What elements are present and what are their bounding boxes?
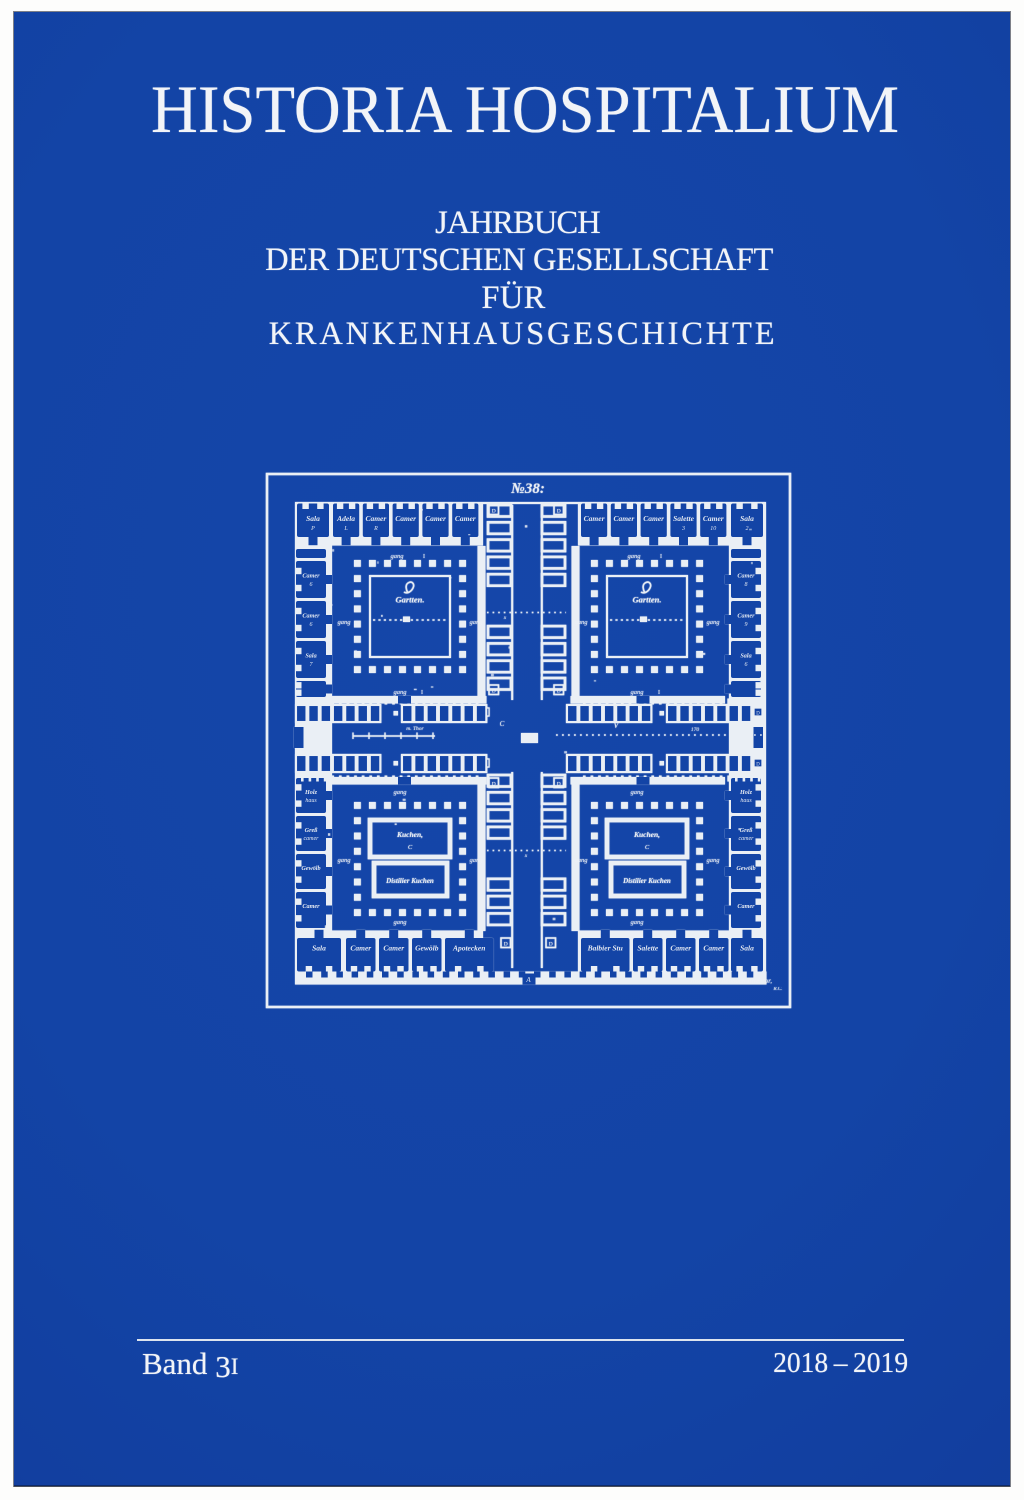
svg-text:camer: camer [304, 836, 320, 842]
svg-text:Kuchen,: Kuchen, [633, 830, 660, 839]
svg-text:Greß: Greß [740, 827, 754, 834]
svg-text:gang: gang [470, 619, 484, 626]
svg-text:gang: gang [338, 857, 352, 864]
svg-text:I: I [423, 554, 425, 560]
svg-text:170: 170 [691, 727, 700, 733]
svg-text:x: x [524, 853, 528, 859]
svg-text:gang: gang [394, 689, 408, 696]
svg-text:Camer: Camer [302, 613, 320, 620]
svg-text:Sala: Sala [740, 944, 754, 953]
svg-text:Camer: Camer [737, 573, 755, 580]
svg-text:Sala: Sala [312, 944, 326, 953]
svg-text:Camer: Camer [365, 514, 386, 523]
svg-text:D: D [756, 762, 760, 767]
svg-text:6: 6 [745, 662, 748, 668]
svg-text:gang: gang [575, 619, 589, 626]
svg-text:L: L [343, 526, 348, 532]
svg-text:R.C.: R.C. [773, 987, 783, 992]
svg-text:Salette: Salette [637, 944, 659, 953]
svg-text:gang: gang [631, 789, 645, 796]
svg-text:Adela: Adela [336, 514, 355, 523]
svg-text:Sala: Sala [305, 653, 316, 660]
svg-text:haus: haus [305, 798, 317, 804]
svg-text:Gartten.: Gartten. [395, 595, 424, 605]
svg-text:Camer: Camer [383, 944, 404, 953]
svg-text:I: I [421, 690, 423, 696]
svg-text:gang: gang [707, 619, 721, 626]
svg-text:Camer: Camer [703, 944, 724, 953]
svg-text:Holz: Holz [739, 789, 753, 796]
svg-text:Camer: Camer [302, 903, 320, 910]
svg-text:I: I [660, 554, 662, 560]
svg-text:Camer: Camer [584, 514, 605, 523]
svg-text:C: C [645, 844, 650, 851]
svg-text:Gewölb: Gewölb [736, 865, 755, 872]
svg-text:D: D [557, 688, 561, 694]
svg-text:Camer: Camer [613, 514, 634, 523]
svg-text:Gewölb: Gewölb [415, 944, 439, 953]
svg-text:Camer: Camer [302, 573, 320, 580]
svg-text:D: D [557, 508, 561, 514]
svg-text:Sala: Sala [740, 514, 754, 523]
svg-text:I: I [658, 690, 660, 696]
svg-text:gang: gang [338, 619, 352, 626]
svg-text:10: 10 [710, 526, 716, 532]
svg-text:6: 6 [310, 582, 313, 588]
svg-text:Sala: Sala [306, 514, 320, 523]
svg-text:6: 6 [310, 622, 313, 628]
svg-text:D: D [504, 941, 508, 947]
svg-text:Gewölb: Gewölb [301, 865, 320, 872]
svg-text:D: D [557, 781, 561, 787]
svg-text:Greß: Greß [305, 827, 319, 834]
svg-text:gang: gang [391, 553, 405, 560]
svg-text:Camer: Camer [703, 514, 724, 523]
svg-text:P: P [310, 526, 315, 532]
svg-text:Camer: Camer [455, 514, 476, 523]
svg-text:Camer: Camer [643, 514, 664, 523]
svg-text:gang: gang [575, 857, 589, 864]
svg-text:Camer: Camer [395, 514, 416, 523]
svg-text:Salette: Salette [673, 514, 695, 523]
svg-text:Camer: Camer [350, 944, 371, 953]
svg-text:camer: camer [739, 836, 755, 842]
svg-text:3: 3 [681, 526, 685, 532]
svg-text:D: D [492, 781, 496, 787]
svg-text:gang: gang [394, 789, 408, 796]
svg-text:gang: gang [628, 553, 642, 560]
svg-text:№38:: №38: [510, 481, 545, 497]
svg-text:Sala: Sala [740, 653, 751, 660]
svg-text:2: 2 [746, 526, 749, 532]
svg-text:x: x [503, 615, 507, 621]
svg-text:C: C [408, 844, 413, 851]
svg-text:C: C [500, 720, 505, 728]
svg-text:m. Thor: m. Thor [406, 726, 424, 732]
svg-text:gang: gang [394, 919, 408, 926]
svg-text:D: D [492, 688, 496, 694]
svg-text:gang: gang [707, 857, 721, 864]
svg-text:Distilier Kuchen: Distilier Kuchen [622, 877, 671, 885]
svg-text:gang: gang [470, 857, 484, 864]
svg-text:Camer: Camer [737, 903, 755, 910]
svg-text:Distilier Kuchen: Distilier Kuchen [385, 877, 434, 885]
svg-text:Holz: Holz [304, 789, 318, 796]
svg-text:Balbier Stu: Balbier Stu [587, 944, 623, 953]
svg-text:A: A [525, 976, 531, 984]
svg-text:D: D [756, 711, 760, 716]
svg-text:8: 8 [745, 582, 748, 588]
svg-text:haus: haus [740, 798, 752, 804]
svg-text:R: R [373, 526, 378, 532]
svg-text:D: D [549, 941, 553, 947]
svg-text:9: 9 [745, 622, 748, 628]
svg-text:Camer: Camer [670, 944, 691, 953]
svg-text:D: D [492, 508, 496, 514]
svg-text:Joseph Furttenbach Inventor,: Joseph Furttenbach Inventor, [690, 977, 772, 985]
svg-text:gang: gang [631, 919, 645, 926]
svg-text:Apotecken: Apotecken [452, 944, 486, 953]
svg-text:gang: gang [631, 689, 645, 696]
svg-text:Camer: Camer [425, 514, 446, 523]
svg-text:Gartten.: Gartten. [632, 595, 661, 605]
svg-text:Camer: Camer [737, 613, 755, 620]
svg-text:Kuchen,: Kuchen, [396, 830, 423, 839]
